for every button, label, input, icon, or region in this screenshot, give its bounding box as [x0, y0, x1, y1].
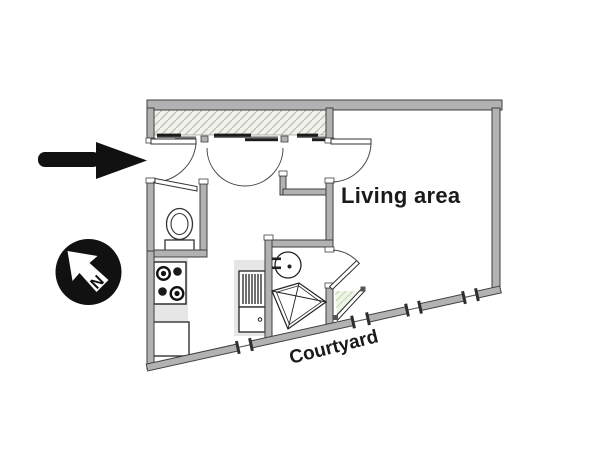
refrigerator-icon — [152, 322, 189, 356]
wc-door-icon — [155, 179, 197, 192]
entrance-arrow-icon — [38, 142, 147, 179]
stove-icon — [154, 262, 186, 304]
entry-door-swing-icon — [151, 139, 196, 182]
floor-plan-svg — [0, 0, 600, 450]
toilet-icon — [165, 209, 194, 253]
floor-plan: Living area Courtyard N — [0, 0, 600, 450]
compass-north-icon — [56, 239, 122, 305]
washer-icon — [239, 307, 265, 332]
closet-strip — [154, 110, 326, 135]
radiator-icon — [239, 271, 265, 307]
shower-icon — [272, 283, 326, 329]
bathroom-door-swing-icon — [330, 250, 360, 289]
double-door-swing-icon — [201, 136, 288, 186]
bathroom-sink-icon — [272, 252, 301, 278]
corner-closet-hatch — [333, 287, 366, 321]
living-area-label: Living area — [341, 183, 460, 209]
living-room-door-swing-icon — [331, 139, 371, 182]
